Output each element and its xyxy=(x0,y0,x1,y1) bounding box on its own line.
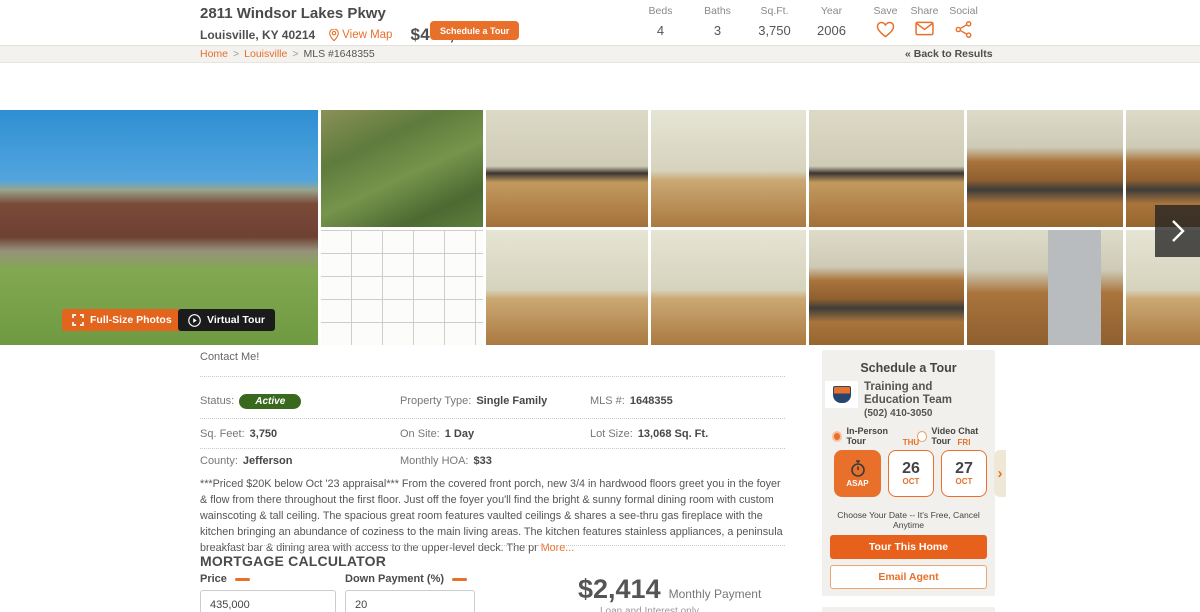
breadcrumb: Home > Louisville > MLS #1648355 xyxy=(200,48,375,60)
divider xyxy=(200,448,785,449)
play-icon xyxy=(188,314,201,327)
envelope-icon xyxy=(915,21,934,36)
contact-me-text: Contact Me! xyxy=(200,351,259,363)
agent-logo xyxy=(825,381,858,408)
agent-phone: (502) 410-3050 xyxy=(864,408,932,419)
save-button[interactable]: Save xyxy=(866,5,905,43)
breadcrumb-separator: > xyxy=(292,48,298,60)
share-button[interactable]: Share xyxy=(905,5,944,43)
field-county: County:Jefferson xyxy=(200,455,400,467)
social-button[interactable]: Social xyxy=(944,5,983,43)
photo-kitchen-range[interactable] xyxy=(809,230,964,345)
price-accent-dash xyxy=(235,578,250,581)
header-actions: Save Share Social xyxy=(866,5,983,43)
stat-year: Year 2006 xyxy=(803,5,860,38)
stat-baths: Baths 3 xyxy=(689,5,746,38)
monthly-payment-label: Monthly Payment xyxy=(669,587,762,601)
full-size-photos-label: Full-Size Photos xyxy=(90,314,172,326)
field-status: Status: Active xyxy=(200,394,400,409)
monthly-payment-amount: $2,414 xyxy=(578,574,661,605)
next-panel-partial xyxy=(822,607,995,612)
field-lotsize: Lot Size:13,068 Sq. Ft. xyxy=(590,428,785,440)
photo-living-room-furnished[interactable] xyxy=(486,230,648,345)
price-input[interactable] xyxy=(200,590,336,612)
status-badge: Active xyxy=(239,394,301,409)
heart-icon xyxy=(876,21,895,38)
breadcrumb-separator: > xyxy=(233,48,239,60)
location-text: Louisville, KY 40214 xyxy=(200,28,315,42)
breadcrumb-city-link[interactable]: Louisville xyxy=(244,48,287,60)
radio-selected-icon xyxy=(832,431,842,442)
chevron-right-icon xyxy=(1171,219,1185,243)
photo-see-thru-fireplace[interactable] xyxy=(809,110,964,227)
back-to-results-link[interactable]: « Back to Results xyxy=(905,48,993,60)
asap-label: ASAP xyxy=(846,479,868,488)
tour-date-picker: ASAP THU 26 OCT FRI 27 OCT › xyxy=(834,450,1006,497)
tour-note: Choose Your Date -- It's Free, Cancel An… xyxy=(822,510,995,530)
mortgage-calculator-heading: MORTGAGE CALCULATOR xyxy=(200,553,386,569)
page-title: 2811 Windsor Lakes Pkwy xyxy=(200,5,386,22)
stat-beds: Beds 4 xyxy=(632,5,689,38)
email-agent-button[interactable]: Email Agent xyxy=(830,565,987,589)
field-mls: MLS #:1648355 xyxy=(590,395,785,407)
date-button-thu-26[interactable]: THU 26 OCT xyxy=(888,450,934,497)
date-button-fri-27[interactable]: FRI 27 OCT xyxy=(941,450,987,497)
divider xyxy=(200,376,785,377)
photo-kitchen-counters[interactable] xyxy=(967,110,1123,227)
team-shield-icon xyxy=(833,386,851,403)
asap-date-button[interactable]: ASAP xyxy=(834,450,881,497)
expand-icon xyxy=(72,314,84,326)
monthly-payment: $2,414 Monthly Payment xyxy=(578,574,761,605)
schedule-tour-header-button[interactable]: Schedule a Tour xyxy=(430,21,519,40)
tour-this-home-button[interactable]: Tour This Home xyxy=(830,535,987,559)
map-pin-icon xyxy=(329,29,339,41)
monthly-payment-note: Loan and Interest only xyxy=(600,606,699,612)
agent-name: Training and Education Team xyxy=(864,381,989,407)
schedule-tour-panel: Schedule a Tour Training and Education T… xyxy=(822,350,995,596)
virtual-tour-label: Virtual Tour xyxy=(207,314,265,326)
divider xyxy=(200,545,785,546)
full-size-photos-button[interactable]: Full-Size Photos xyxy=(62,309,182,331)
view-map-link[interactable]: View Map xyxy=(329,29,392,41)
more-dates-button[interactable]: › xyxy=(994,450,1006,497)
photo-floor-plan[interactable] xyxy=(321,230,483,345)
listing-page: 2811 Windsor Lakes Pkwy Louisville, KY 4… xyxy=(0,0,1200,612)
breadcrumb-home-link[interactable]: Home xyxy=(200,48,228,60)
stat-sqft: Sq.Ft. 3,750 xyxy=(746,5,803,38)
gallery-next-button[interactable] xyxy=(1155,205,1200,257)
field-hoa: Monthly HOA:$33 xyxy=(400,455,590,467)
divider xyxy=(200,418,785,419)
share-nodes-icon xyxy=(955,21,972,38)
photo-great-room-windows[interactable] xyxy=(651,110,806,227)
property-stats: Beds 4 Baths 3 Sq.Ft. 3,750 Year 2006 xyxy=(632,5,860,38)
stopwatch-icon xyxy=(850,460,866,478)
details-row-3: County:Jefferson Monthly HOA:$33 xyxy=(200,450,785,472)
breadcrumb-bar xyxy=(0,45,1200,63)
price-field-label: Price xyxy=(200,573,250,585)
field-property-type: Property Type:Single Family xyxy=(400,395,590,407)
view-map-label: View Map xyxy=(342,29,392,41)
photo-foyer-front-door[interactable] xyxy=(486,110,648,227)
details-row-1: Status: Active Property Type:Single Fami… xyxy=(200,386,785,416)
virtual-tour-button[interactable]: Virtual Tour xyxy=(178,309,275,331)
breadcrumb-current-mls: MLS #1648355 xyxy=(304,48,375,60)
photo-kitchen-refrigerator[interactable] xyxy=(967,230,1123,345)
photo-empty-room-ceiling-fan[interactable] xyxy=(651,230,806,345)
field-sqfeet: Sq. Feet:3,750 xyxy=(200,428,400,440)
more-link[interactable]: More... xyxy=(541,542,575,554)
down-payment-input[interactable] xyxy=(345,590,475,612)
details-row-2: Sq. Feet:3,750 On Site:1 Day Lot Size:13… xyxy=(200,421,785,447)
down-payment-accent-dash xyxy=(452,578,467,581)
tour-panel-heading: Schedule a Tour xyxy=(822,361,995,375)
field-onsite: On Site:1 Day xyxy=(400,428,590,440)
down-payment-field-label: Down Payment (%) xyxy=(345,573,467,585)
photo-aerial-view[interactable] xyxy=(321,110,483,227)
property-description: ***Priced $20K below Oct '23 appraisal**… xyxy=(200,476,786,556)
